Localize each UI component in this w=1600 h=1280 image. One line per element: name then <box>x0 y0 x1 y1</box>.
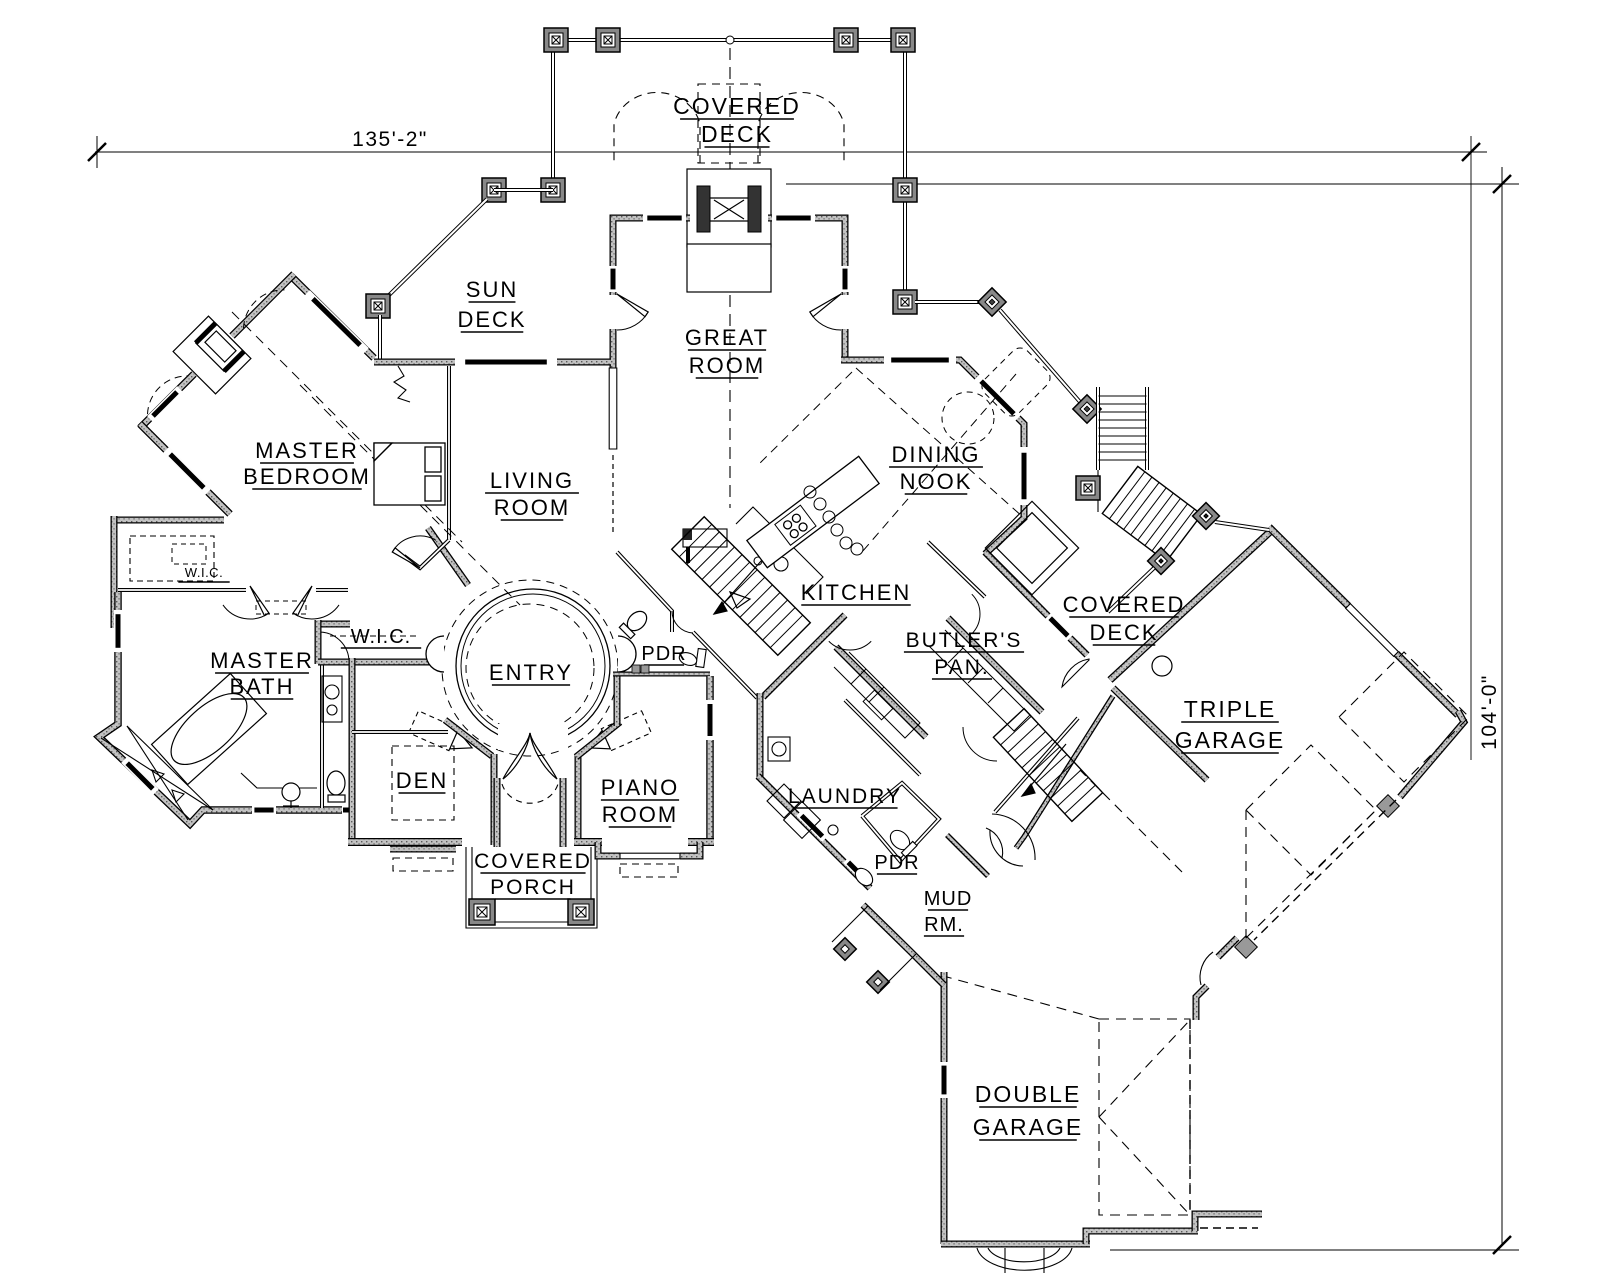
svg-text:DECK: DECK <box>1089 620 1158 645</box>
svg-text:MASTER: MASTER <box>255 438 359 463</box>
svg-text:ROOM: ROOM <box>494 495 570 520</box>
svg-text:DOUBLE: DOUBLE <box>975 1081 1082 1107</box>
svg-text:LAUNDRY: LAUNDRY <box>788 785 902 808</box>
svg-text:LIVING: LIVING <box>490 468 574 493</box>
svg-text:GARAGE: GARAGE <box>1175 727 1285 753</box>
svg-text:104'-0": 104'-0" <box>1478 674 1501 750</box>
svg-text:ROOM: ROOM <box>602 802 678 827</box>
svg-text:COVERED: COVERED <box>673 93 801 119</box>
svg-text:SUN: SUN <box>466 277 518 302</box>
svg-text:MUD: MUD <box>924 888 973 910</box>
svg-text:TRIPLE: TRIPLE <box>1184 696 1277 722</box>
svg-text:PAN.: PAN. <box>934 656 989 679</box>
svg-text:MASTER: MASTER <box>210 648 314 673</box>
svg-text:W.I.C.: W.I.C. <box>351 626 411 648</box>
svg-text:BEDROOM: BEDROOM <box>243 464 371 489</box>
svg-text:COVERED: COVERED <box>1063 592 1186 617</box>
svg-text:DECK: DECK <box>701 121 773 147</box>
svg-text:PORCH: PORCH <box>490 876 576 899</box>
svg-text:DEN: DEN <box>396 768 448 793</box>
svg-text:ENTRY: ENTRY <box>489 660 573 685</box>
svg-text:BATH: BATH <box>229 674 294 699</box>
svg-text:KITCHEN: KITCHEN <box>801 580 912 605</box>
svg-text:GARAGE: GARAGE <box>973 1114 1083 1140</box>
svg-text:PDR: PDR <box>641 643 686 665</box>
svg-text:W.I.C.: W.I.C. <box>185 565 223 580</box>
svg-text:ROOM: ROOM <box>689 353 765 378</box>
svg-text:135'-2": 135'-2" <box>352 128 428 151</box>
svg-text:GREAT: GREAT <box>685 325 769 350</box>
svg-text:DECK: DECK <box>457 307 526 332</box>
svg-text:COVERED: COVERED <box>474 850 592 873</box>
svg-text:RM.: RM. <box>924 914 964 936</box>
svg-text:PIANO: PIANO <box>601 775 679 800</box>
svg-text:PDR: PDR <box>874 852 919 874</box>
svg-text:DINING: DINING <box>892 442 981 467</box>
svg-text:NOOK: NOOK <box>900 469 973 494</box>
svg-text:BUTLER'S: BUTLER'S <box>906 629 1023 652</box>
